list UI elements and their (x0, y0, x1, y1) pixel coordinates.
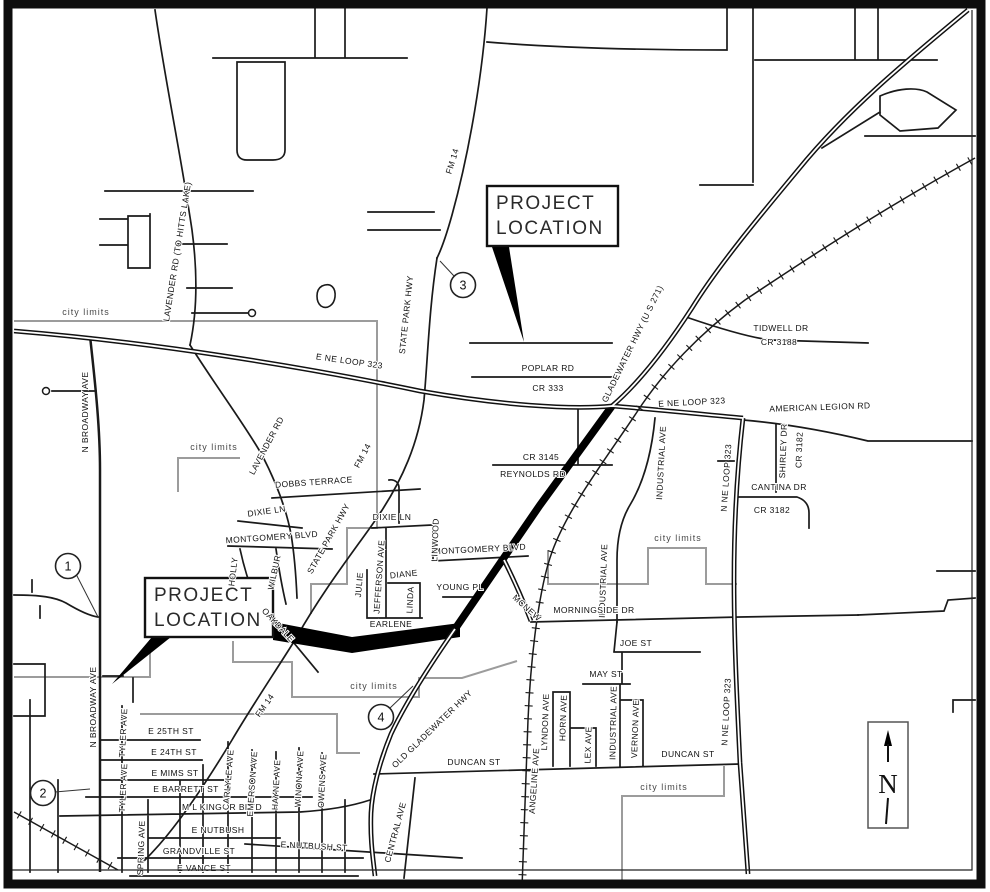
north-letter: N (878, 769, 898, 799)
road-lavender-north (155, 10, 196, 345)
label-e-barrett-st: E BARRETT ST (153, 784, 219, 794)
label-winona-ave: WINONA AVE (293, 750, 306, 807)
railroads (14, 157, 975, 888)
label-cr-3182: CR 3182 (754, 505, 790, 515)
callout-line1: PROJECT (496, 193, 595, 214)
label-lex-ave: LEX AVE (582, 726, 593, 763)
label-industrial-ave: INDUSTRIAL AVE (607, 686, 618, 760)
label-grandville-st: GRANDVILLE ST (163, 846, 235, 856)
label-e-nutbush-st: E NUTBUSH ST (280, 839, 348, 853)
road-project-highlight-taper (273, 622, 460, 653)
label-state-park-hwy: STATE PARK HWY (397, 275, 415, 354)
callout-line2: LOCATION (154, 610, 262, 631)
label-fm14: FM 14 (444, 147, 461, 175)
project-location-callout-north: PROJECT LOCATION (487, 186, 618, 342)
road-project-highlight (455, 406, 612, 629)
label-dixie-ln: DIXIE LN (247, 503, 287, 518)
marker-3-leader (440, 261, 454, 276)
label-montgomery-blvd: MONTGOMERY BLVD (433, 542, 526, 557)
label-diane: DIANE (389, 568, 418, 581)
map-canvas: PROJECT LOCATION PROJECT LOCATION city l… (0, 0, 990, 892)
label-linwood: LINWOOD (429, 518, 441, 562)
label-city-limits: city limits (62, 307, 110, 317)
label-tidwell-dr: TIDWELL DR (753, 323, 808, 333)
callout-pointer (492, 247, 524, 342)
label-lavender-hitts: LAVENDER RD (TO HITTS LAKE) (161, 181, 193, 322)
label-earlene: EARLENE (370, 619, 412, 629)
street-labels: city limits city limits city limits city… (62, 147, 870, 875)
label-city-limits: city limits (190, 442, 238, 452)
roads-northwest-stubs (52, 191, 253, 391)
label-lavender-rd: LAVENDER RD (247, 415, 286, 476)
city-limits-line (178, 458, 240, 492)
marker-3-number: 3 (460, 279, 467, 293)
label-cr-3188: CR 3188 (761, 337, 797, 347)
label-jefferson-ave: JEFFERSON AVE (371, 540, 386, 615)
label-n-ne-loop-323: N NE LOOP 323 (719, 678, 733, 746)
label-julie: JULIE (353, 572, 365, 598)
label-morningside-dr: MORNINGSIDE DR (553, 605, 634, 615)
label-shirley-dr: SHIRLEY DR (777, 423, 789, 478)
label-e-mims-st: E MIMS ST (151, 768, 198, 778)
label-joe-st: JOE ST (620, 638, 652, 648)
label-tyler-ave: TYLER AVE (117, 708, 130, 758)
road-american-legion (743, 420, 972, 441)
label-n-ne-loop-323: N NE LOOP 323 (719, 444, 734, 512)
label-e-vance-st: E VANCE ST (177, 863, 231, 873)
label-n-broadway: N BROADWAY AVE (80, 372, 90, 453)
label-city-limits: city limits (640, 782, 688, 792)
roads-west-middle (14, 580, 133, 716)
label-hayne-ave: HAYNE AVE (270, 759, 283, 810)
label-e-25th-st: E 25TH ST (148, 726, 194, 736)
city-limits-line (548, 548, 737, 584)
label-young-pl: YOUNG PL (436, 582, 483, 592)
label-fm14: FM 14 (352, 442, 373, 470)
label-poplar-rd: POPLAR RD (522, 363, 575, 373)
label-montgomery-blvd: MONTGOMERY BLVD (225, 529, 318, 545)
label-duncan-st: DUNCAN ST (661, 749, 714, 759)
label-cr-333: CR 333 (532, 383, 563, 393)
callout-line2: LOCATION (496, 218, 604, 239)
label-industrial-ave: INDUSTRIAL AVE (654, 426, 668, 501)
label-spring-ave: SPRING AVE (135, 820, 147, 875)
label-e-ne-loop-323: E NE LOOP 323 (315, 351, 383, 370)
label-cr-3182: CR 3182 (793, 432, 804, 469)
pond (317, 285, 335, 308)
label-may-st: MAY ST (589, 669, 622, 679)
label-e-ne-loop-323: E NE LOOP 323 (658, 395, 726, 409)
label-e-24th-st: E 24TH ST (151, 747, 197, 757)
label-linda: LINDA (404, 586, 415, 614)
marker-2-leader (55, 789, 90, 792)
road-block-loop (237, 62, 285, 160)
label-dixie-ln: DIXIE LN (373, 512, 412, 522)
road-industrial-north (617, 418, 655, 622)
road-fm14-north (437, 8, 487, 258)
marker-2-number: 2 (40, 787, 47, 801)
label-duncan-st: DUNCAN ST (447, 757, 500, 767)
label-dobbs-terrace: DOBBS TERRACE (275, 474, 353, 489)
label-american-legion-rd: AMERICAN LEGION RD (769, 400, 870, 414)
cul-de-sac (43, 388, 50, 395)
city-limits-line (14, 640, 150, 677)
vicinity-map: PROJECT LOCATION PROJECT LOCATION city l… (0, 0, 990, 892)
marker-4-number: 4 (378, 711, 385, 725)
roads-north-middle (213, 8, 727, 230)
roads-northeast (700, 8, 975, 185)
label-city-limits: city limits (654, 533, 702, 543)
label-lyndon-ave: LYNDON AVE (539, 693, 551, 750)
callout-line1: PROJECT (154, 585, 253, 606)
label-cantina-dr: CANTINA DR (751, 482, 806, 492)
north-arrow-icon: N (868, 722, 908, 828)
label-vernon-ave: VERNON AVE (629, 699, 641, 758)
label-horn-ave: HORN AVE (557, 694, 569, 741)
cul-de-sac (249, 310, 256, 317)
label-city-limits: city limits (350, 681, 398, 691)
marker-1-number: 1 (65, 560, 72, 574)
label-owens-ave: OWENS AVE (316, 754, 329, 808)
roads-east-stubs (718, 461, 975, 712)
label-n-broadway: N BROADWAY AVE (88, 667, 98, 748)
label-e-nutbush: E NUTBUSH (192, 825, 245, 835)
label-cr-3145: CR 3145 (523, 452, 559, 462)
project-location-callout-south: PROJECT LOCATION (112, 578, 273, 684)
label-reynolds-rd: REYNOLDS RD (500, 469, 566, 479)
label-tyler-ave: TYLER AVE (117, 763, 130, 813)
